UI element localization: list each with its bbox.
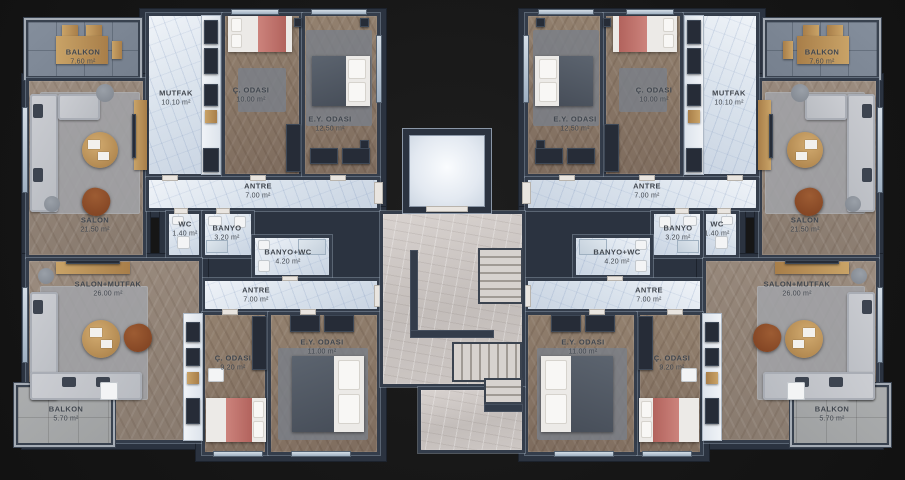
cutting-board (706, 372, 718, 384)
pouf (791, 84, 809, 102)
tv (769, 114, 773, 158)
window (539, 10, 593, 14)
table-decor (796, 152, 807, 160)
pillow (545, 360, 567, 390)
wardrobe (604, 124, 619, 172)
balcony-chair (827, 25, 843, 36)
label-wc-tl: WC1.40 m² (172, 220, 197, 239)
closet (585, 315, 615, 332)
kitchen-appliance (705, 322, 719, 342)
side-table (845, 196, 861, 212)
dresser (535, 148, 563, 164)
label-ey-odasi-bl: E.Y. ODASI11.00 m² (300, 338, 343, 357)
label-ey-odasi-br: E.Y. ODASI11.00 m² (561, 338, 604, 357)
elevator-shaft (403, 129, 491, 213)
door-opening (639, 175, 655, 181)
label-salon-mutfak-bl: SALON+MUTFAK26.00 m² (75, 280, 142, 299)
label-salon-mutfak-br: SALON+MUTFAK26.00 m² (764, 280, 831, 299)
stairs-mid-flight (452, 342, 522, 382)
door-opening (675, 208, 689, 214)
sofa-cushion (862, 168, 872, 182)
fridge (686, 148, 702, 172)
label-mutfak-tl: MUTFAK10.10 m² (159, 89, 193, 108)
sofa-chaise (805, 94, 847, 120)
label-banyo-tl: BANYO3.20 m² (212, 224, 241, 243)
bed-blanket (559, 56, 593, 106)
stairwell-wall (410, 330, 494, 338)
door-opening (667, 309, 683, 315)
label-ey-odasi-tr: E.Y. ODASI12.50 m² (553, 115, 596, 134)
label-mutfak-tr: MUTFAK10.10 m² (712, 89, 746, 108)
label-banyo-tr: BANYO3.20 m² (663, 224, 692, 243)
nightstand (603, 18, 611, 27)
pillow (539, 82, 557, 102)
sofa-cushion (862, 300, 872, 314)
table-decor (805, 140, 817, 149)
door-opening (717, 208, 731, 214)
window (555, 452, 613, 456)
stairs-upper-flight (478, 248, 523, 304)
room-entry-hall-lower (525, 278, 703, 312)
elevator-door (426, 206, 468, 212)
label-balkon-tr: BALKON7.60 m² (805, 48, 839, 67)
label-wc-tr: WC1.40 m² (704, 220, 729, 239)
pillow (663, 18, 674, 32)
window (643, 452, 691, 456)
kitchen-sink (687, 48, 701, 74)
stairs-lower-flight (484, 378, 523, 404)
pillow (641, 401, 652, 418)
entrance-door (522, 182, 531, 204)
window (627, 10, 673, 14)
sofa (763, 372, 875, 400)
kitchen-appliance (687, 20, 701, 44)
label-c-odasi-tl: Ç. ODASI10.00 m² (233, 86, 270, 105)
stair-railing (484, 404, 523, 412)
door-opening (559, 175, 575, 181)
pillow (539, 59, 557, 79)
wardrobe (638, 316, 653, 370)
pillow (641, 421, 652, 438)
sofa-cushion (829, 377, 843, 387)
window (878, 288, 882, 362)
bed-blanket (619, 16, 647, 52)
nightstand (536, 18, 545, 27)
pillow (663, 34, 674, 48)
label-balkon-bl: BALKON5.70 m² (49, 405, 83, 424)
pillow (545, 394, 567, 424)
cutting-board (688, 110, 700, 123)
label-balkon-tl: BALKON7.60 m² (66, 48, 100, 67)
table-decor (793, 340, 804, 348)
window (524, 36, 528, 102)
dresser (567, 148, 595, 164)
stove (705, 348, 719, 366)
bed-blanket (571, 356, 613, 432)
label-antre-tr: ANTRE7.00 m² (633, 182, 661, 201)
window (878, 108, 882, 192)
table-decor (803, 328, 815, 337)
coffee-table (787, 132, 823, 168)
label-c-odasi-tr: Ç. ODASI10.00 m² (636, 86, 673, 105)
balcony-chair (783, 41, 793, 59)
stairwell-wall (410, 250, 418, 338)
bed-blanket (653, 398, 679, 442)
closet (551, 315, 581, 332)
door-opening (607, 276, 623, 281)
balcony-chair (803, 25, 819, 36)
tv (785, 260, 839, 264)
floor-plan: BALKON7.60 m² MUTFAK10.10 m² Ç. ODASI10.… (0, 0, 905, 480)
label-c-odasi-br: Ç. ODASI9.20 m² (654, 354, 691, 373)
label-balkon-br: BALKON5.70 m² (815, 405, 849, 424)
label-banyo-wc-br: BANYO+WC4.20 m² (593, 248, 640, 267)
label-antre-tl: ANTRE7.00 m² (244, 182, 272, 201)
pouf (851, 268, 867, 284)
stove (687, 84, 701, 106)
label-antre-br: ANTRE7.00 m² (635, 286, 663, 305)
sofa-cushion (862, 104, 872, 118)
coffee-table (785, 320, 823, 358)
label-c-odasi-bl: Ç. ODASI9.20 m² (215, 354, 252, 373)
door-opening (727, 175, 743, 181)
label-banyo-wc-bl: BANYO+WC4.20 m² (264, 248, 311, 267)
label-salon-tl: SALON21.50 m² (80, 216, 109, 235)
label-ey-odasi-tl: E.Y. ODASI12.50 m² (308, 115, 351, 134)
fridge (705, 398, 719, 424)
side-table (787, 382, 805, 400)
label-salon-tr: SALON21.50 m² (790, 216, 819, 235)
label-antre-bl: ANTRE7.00 m² (242, 286, 270, 305)
